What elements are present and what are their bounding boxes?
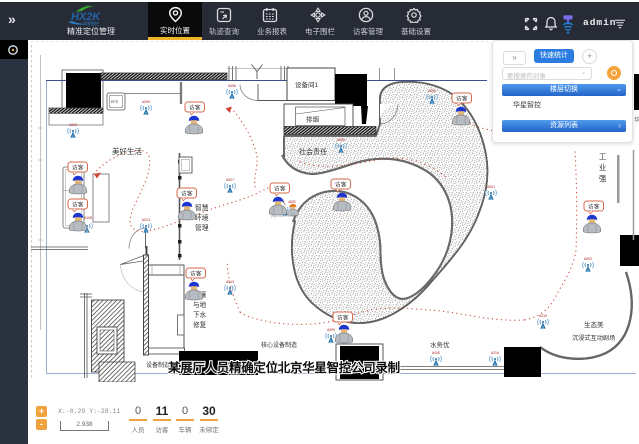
svg-text:A108: A108 (84, 216, 92, 220)
svg-text:A099: A099 (327, 328, 335, 332)
svg-text:社会责任: 社会责任 (299, 147, 327, 156)
svg-text:修复: 修复 (193, 320, 207, 329)
svg-text:核心设备制造: 核心设备制造 (261, 341, 297, 349)
svg-text:智慧: 智慧 (195, 203, 209, 212)
svg-text:与地: 与地 (193, 300, 207, 309)
svg-text:水务优: 水务优 (430, 340, 450, 349)
svg-text:A013: A013 (226, 280, 234, 284)
svg-text:A092: A092 (584, 257, 592, 261)
svg-text:A21A: A21A (491, 351, 500, 355)
svg-text:某展厅人员精确定位北京华星智控公司录制: 某展厅人员精确定位北京华星智控公司录制 (168, 360, 400, 375)
svg-text:A0C3: A0C3 (142, 218, 151, 222)
svg-text:沉浸式互动剧场: 沉浸式互动剧场 (572, 334, 615, 342)
svg-text:工: 工 (599, 152, 606, 161)
svg-text:4828: 4828 (288, 200, 296, 204)
svg-text:A007: A007 (226, 178, 234, 182)
svg-text:A061: A061 (487, 185, 495, 189)
svg-text:设备制造: 设备制造 (146, 361, 170, 369)
svg-text:EPS: EPS (111, 100, 119, 104)
svg-text:A219: A219 (539, 314, 547, 318)
svg-text:A095: A095 (142, 100, 150, 104)
svg-text:A009: A009 (337, 138, 345, 142)
svg-text:生态美: 生态美 (584, 320, 604, 329)
svg-text:[m]1.14.4 ft.1.06: [m]1.14.4 ft.1.06 (271, 214, 294, 218)
svg-text:美好生活: 美好生活 (112, 146, 142, 156)
svg-text:业: 业 (599, 163, 606, 172)
svg-text:强: 强 (599, 174, 606, 183)
svg-text:A090: A090 (428, 89, 436, 93)
svg-text:华: 华 (634, 116, 639, 124)
svg-text:A096: A096 (228, 84, 236, 88)
svg-text:A00E: A00E (432, 351, 441, 355)
svg-text:排烟: 排烟 (306, 115, 320, 124)
svg-text:环境: 环境 (195, 213, 209, 222)
svg-text:A003: A003 (69, 123, 77, 127)
svg-text:下水: 下水 (193, 310, 207, 319)
svg-text:管理: 管理 (195, 223, 209, 232)
svg-text:设备间1: 设备间1 (295, 80, 319, 89)
